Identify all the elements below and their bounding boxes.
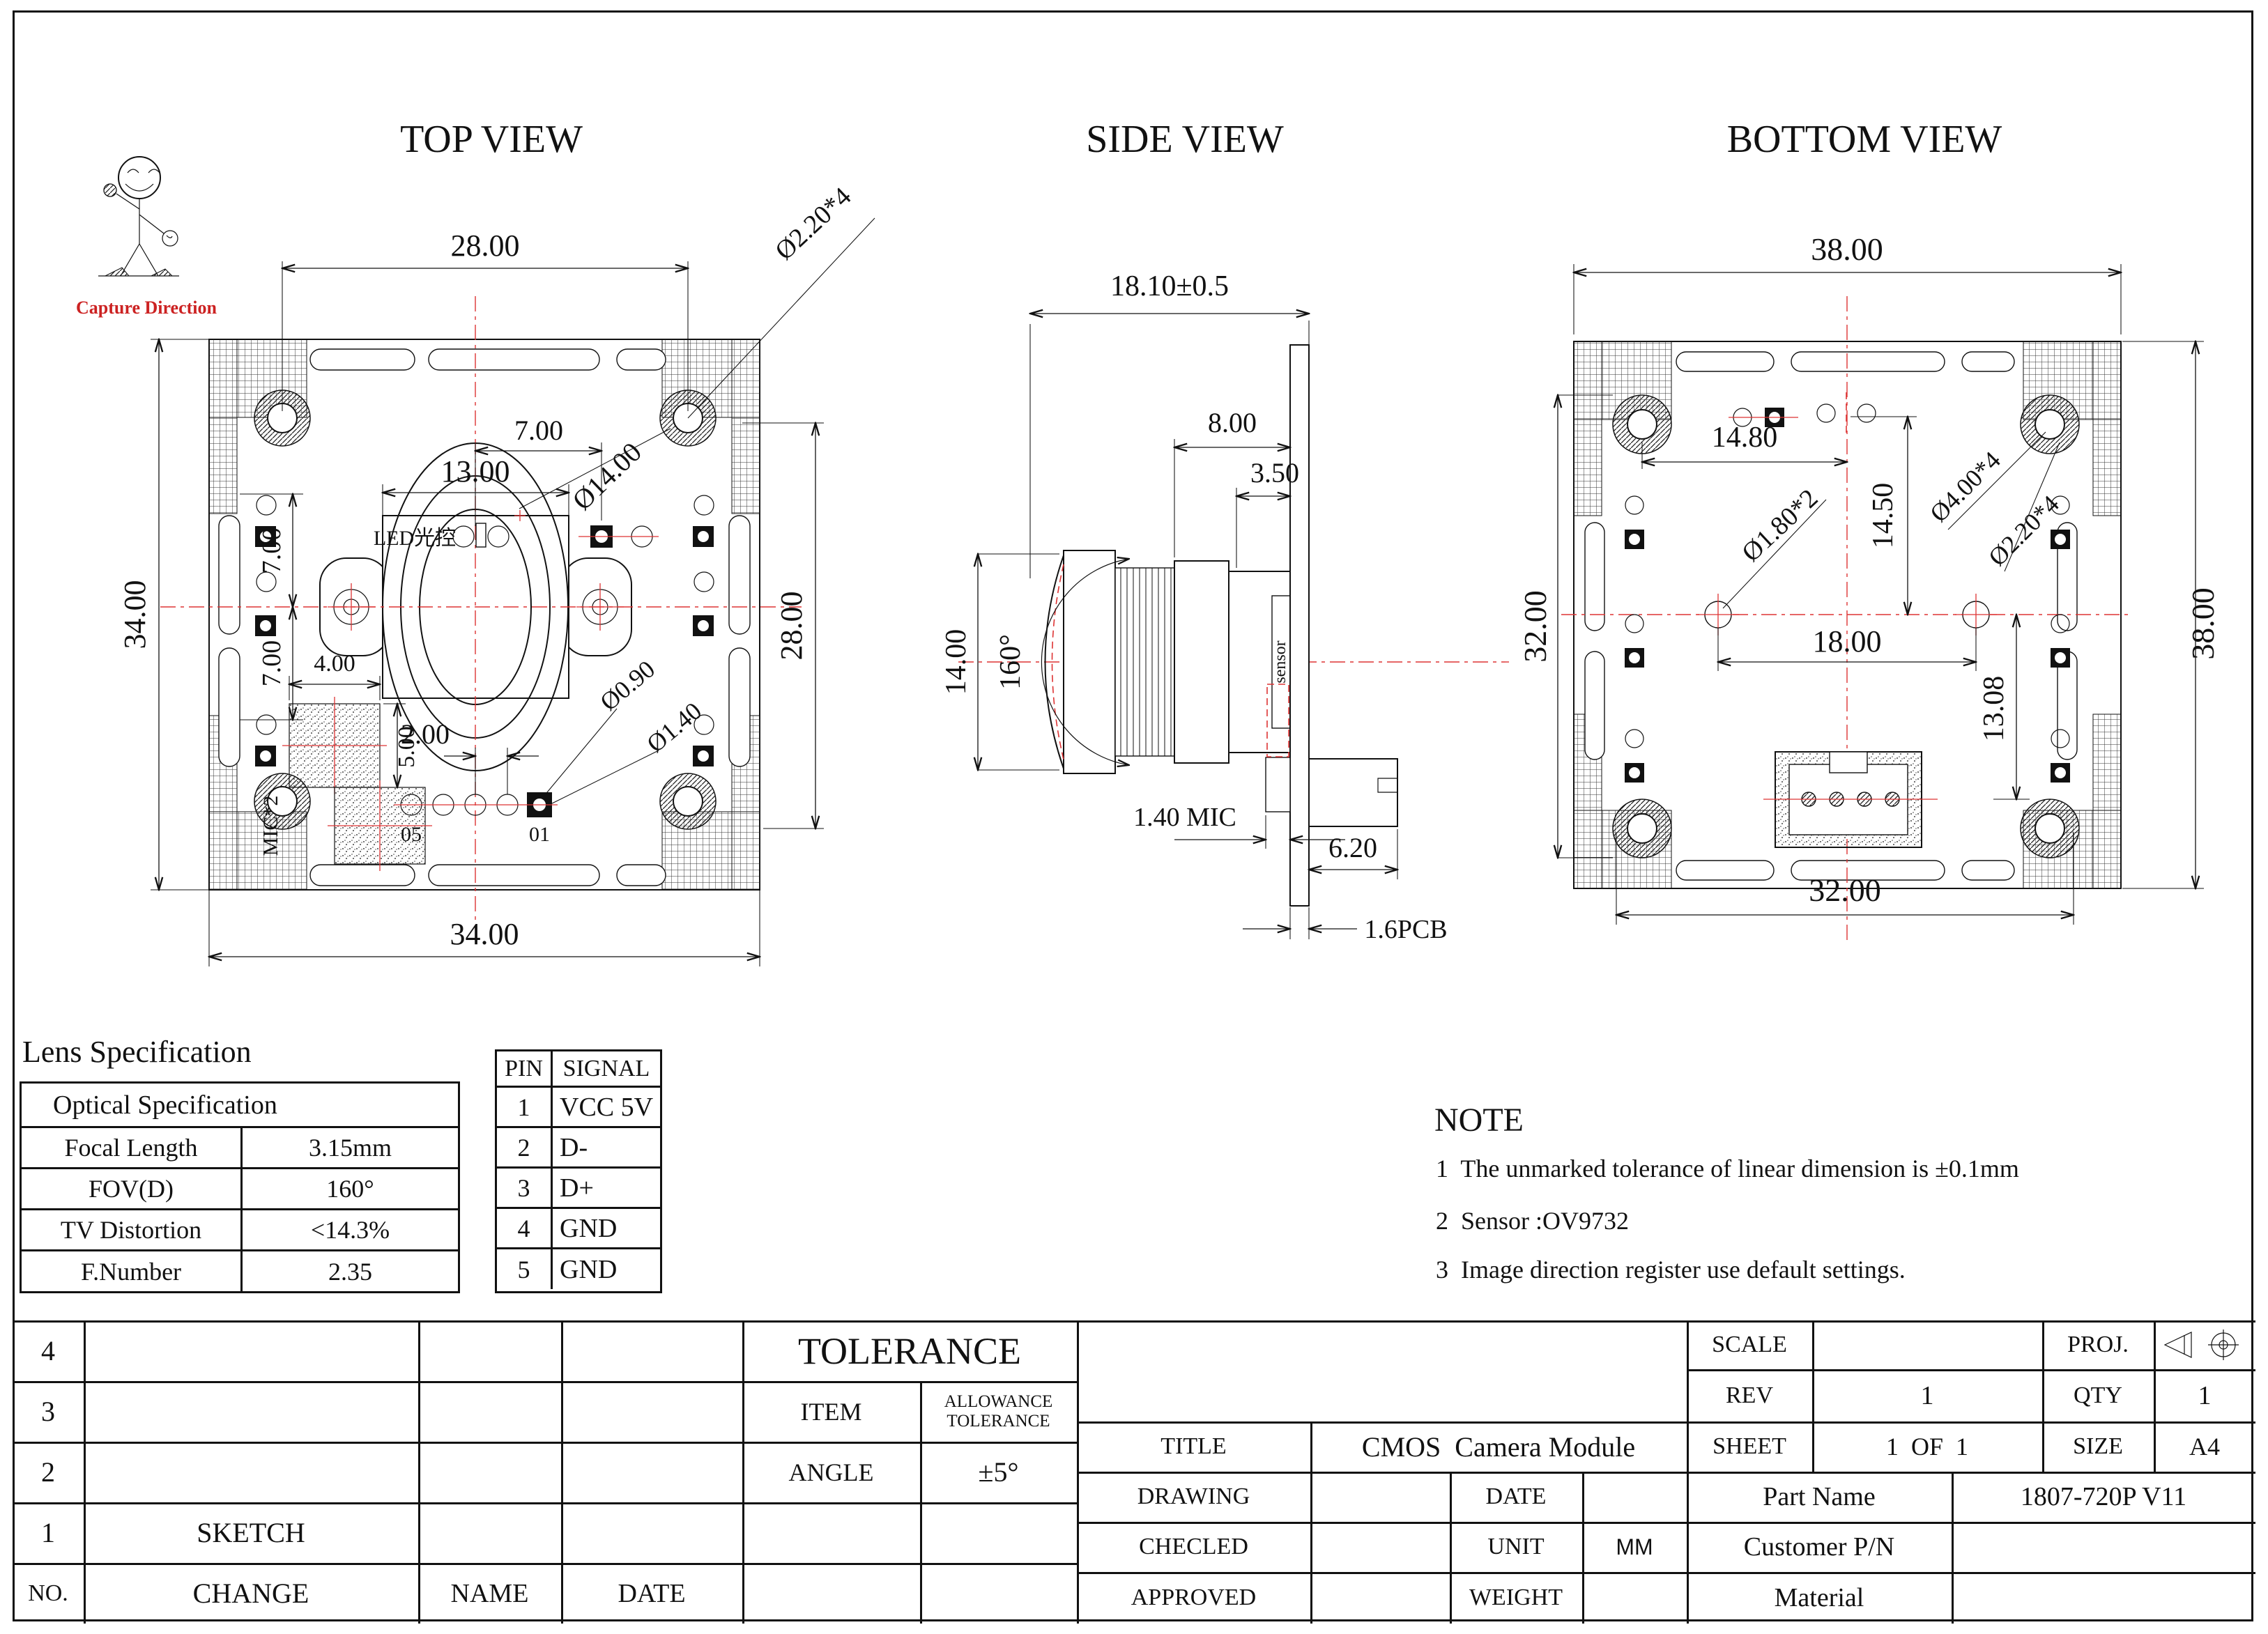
title-value: CMOS Camera Module [1310,1421,1687,1472]
pin-num: 3 [497,1169,553,1207]
allowance-header: ALLOWANCE TOLERANCE [920,1381,1077,1442]
pin-header: PIN [497,1051,553,1086]
pin-table: PIN SIGNAL 1 VCC 5V 2 D- 3 D+ 4 GND 5 GN… [495,1049,662,1293]
dim-b-1308: 13.08 [1978,676,2010,742]
pin1-label: 01 [529,823,550,846]
dim-l7: 7.00 [257,640,286,687]
bottom-connector [1763,752,1938,847]
projection-symbol-icon [2159,1325,2250,1364]
pin-num: 1 [497,1088,553,1126]
qty-value: 1 [2154,1369,2255,1421]
note-heading: NOTE [1434,1102,1524,1139]
weight-label: WEIGHT [1450,1572,1582,1624]
dim-pitch-2: 2.00 [401,718,450,750]
spec-value: 160° [243,1169,458,1208]
led-label: LED光控 [374,527,456,550]
drawing-label: DRAWING [1077,1472,1310,1522]
dim-right-28: 28.00 [774,592,809,661]
spec-label: F.Number [22,1251,243,1291]
scale-label: SCALE [1687,1320,1812,1369]
tb-line [13,1320,2255,1323]
checked-label: CHECLED [1077,1522,1310,1572]
spec-value: 3.15mm [243,1128,458,1167]
sketch-cell: SKETCH [84,1502,418,1563]
size-value: A4 [2154,1421,2255,1472]
dim-b-left32: 32.00 [1517,590,1553,663]
lens-spec-table: Optical Specification Focal Length 3.15m… [20,1081,460,1293]
dim-body8: 8.00 [1208,407,1257,438]
dim-b-top38: 38.00 [1811,231,1883,267]
rev-value: 1 [1812,1369,2042,1421]
no-header: NO. [13,1563,84,1624]
lens-profile [1041,550,1290,773]
note-item-2: 2 Sensor :OV9732 [1436,1208,1629,1235]
item-header: ITEM [742,1381,920,1442]
dim-u7: 7.00 [257,527,286,574]
allowance-line2: TOLERANCE [947,1412,1050,1431]
signal-header: SIGNAL [553,1051,660,1086]
rev-row-1: 1 [13,1502,84,1563]
dim-hole-220: Ø2.20*4 [769,182,857,266]
pin5-label: 05 [401,823,422,846]
spec-label: TV Distortion [22,1210,243,1249]
drawing-sheet: Capture Direction TOP VIEW SIDE VIEW BOT… [0,0,2268,1634]
part-name-label: Part Name [1687,1472,1952,1522]
spec-value: 2.35 [243,1251,458,1291]
rev-row-4: 4 [13,1320,84,1381]
pin-signal: D- [553,1128,660,1166]
customer-pn-label: Customer P/N [1687,1522,1952,1572]
drawing-date-label: DATE [1450,1472,1582,1522]
pin-signal: D+ [553,1169,660,1207]
rev-row-2: 2 [13,1442,84,1502]
pin-signal: VCC 5V [553,1088,660,1126]
dim-b-18: 18.00 [1813,624,1882,658]
title-label: TITLE [1077,1421,1310,1472]
rev-label: REV [1687,1369,1812,1421]
tolerance-header: TOLERANCE [742,1320,1077,1381]
dim-top-28: 28.00 [451,229,520,263]
name-header: NAME [418,1563,561,1624]
size-label: SIZE [2042,1421,2154,1472]
rev-row-3: 3 [13,1381,84,1442]
dim-h14: 14.00 [940,629,972,695]
dim-bottom-34: 34.00 [450,917,519,951]
angle-label: ANGLE [742,1442,920,1502]
dim-c62: 6.20 [1328,832,1377,863]
top-view-drawing: LED光控 MIC*2 [63,136,892,1035]
unit-label: UNIT [1450,1522,1582,1572]
note-item-1: 1 The unmarked tolerance of linear dimen… [1436,1155,2019,1183]
sheet-label: SHEET [1687,1421,1812,1472]
pin-num: 4 [497,1209,553,1247]
dim-pcb16: 1.6PCB [1364,915,1447,944]
dim-mic140: 1.40 MIC [1133,803,1236,832]
pin-num: 2 [497,1128,553,1166]
approved-label: APPROVED [1077,1572,1310,1624]
dim-b-right38: 38.00 [2185,587,2221,660]
dim-mic-4: 4.00 [314,651,355,677]
dim-fov: 160° [995,634,1027,690]
dim-13: 13.00 [441,454,510,488]
side-view-drawing: 18.10±0.5 8.00 3.50 14.00 160° sensor 1.… [944,209,1526,976]
material-label: Material [1687,1572,1952,1624]
sensor-label: sensor [1271,640,1289,683]
dim-left-34: 34.00 [118,580,152,649]
sheet-value: 1 OF 1 [1812,1421,2042,1472]
side-connector [1309,759,1397,826]
proj-symbol-cell [2154,1320,2255,1369]
bottom-view-drawing: 38.00 14.80 14.50 Ø1.80*2 Ø4.00*4 Ø2.20*… [1533,136,2268,1035]
proj-label: PROJ. [2042,1320,2154,1369]
unit-value: MM [1582,1522,1687,1572]
side-pcb-bar [1290,345,1309,906]
spec-label: FOV(D) [22,1169,243,1208]
lens-spec-heading: Lens Specification [22,1035,252,1069]
angle-value: ±5° [920,1442,1077,1502]
qty-label: QTY [2042,1369,2154,1421]
date-header: DATE [561,1563,742,1624]
lens-spec-table-title: Optical Specification [22,1084,458,1126]
dim-total: 18.10±0.5 [1110,270,1229,302]
spec-label: Focal Length [22,1128,243,1167]
part-name-value: 1807-720P V11 [1952,1472,2255,1522]
side-view-title: SIDE VIEW [1042,118,1328,162]
dim-led-7: 7.00 [514,415,563,446]
pin-num: 5 [497,1249,553,1289]
allowance-line1: ALLOWANCE [944,1392,1053,1412]
pin-signal: GND [553,1249,660,1289]
mic-label: MIC*2 [259,796,282,856]
spec-value: <14.3% [243,1210,458,1249]
dim-f35: 3.50 [1250,457,1299,488]
dim-b-1480: 14.80 [1712,422,1778,454]
dim-b-bottom32: 32.00 [1809,872,1881,908]
pin-signal: GND [553,1209,660,1247]
note-item-3: 3 Image direction register use default s… [1436,1256,1906,1284]
change-header: CHANGE [84,1563,418,1624]
dim-b-1450: 14.50 [1867,483,1899,549]
